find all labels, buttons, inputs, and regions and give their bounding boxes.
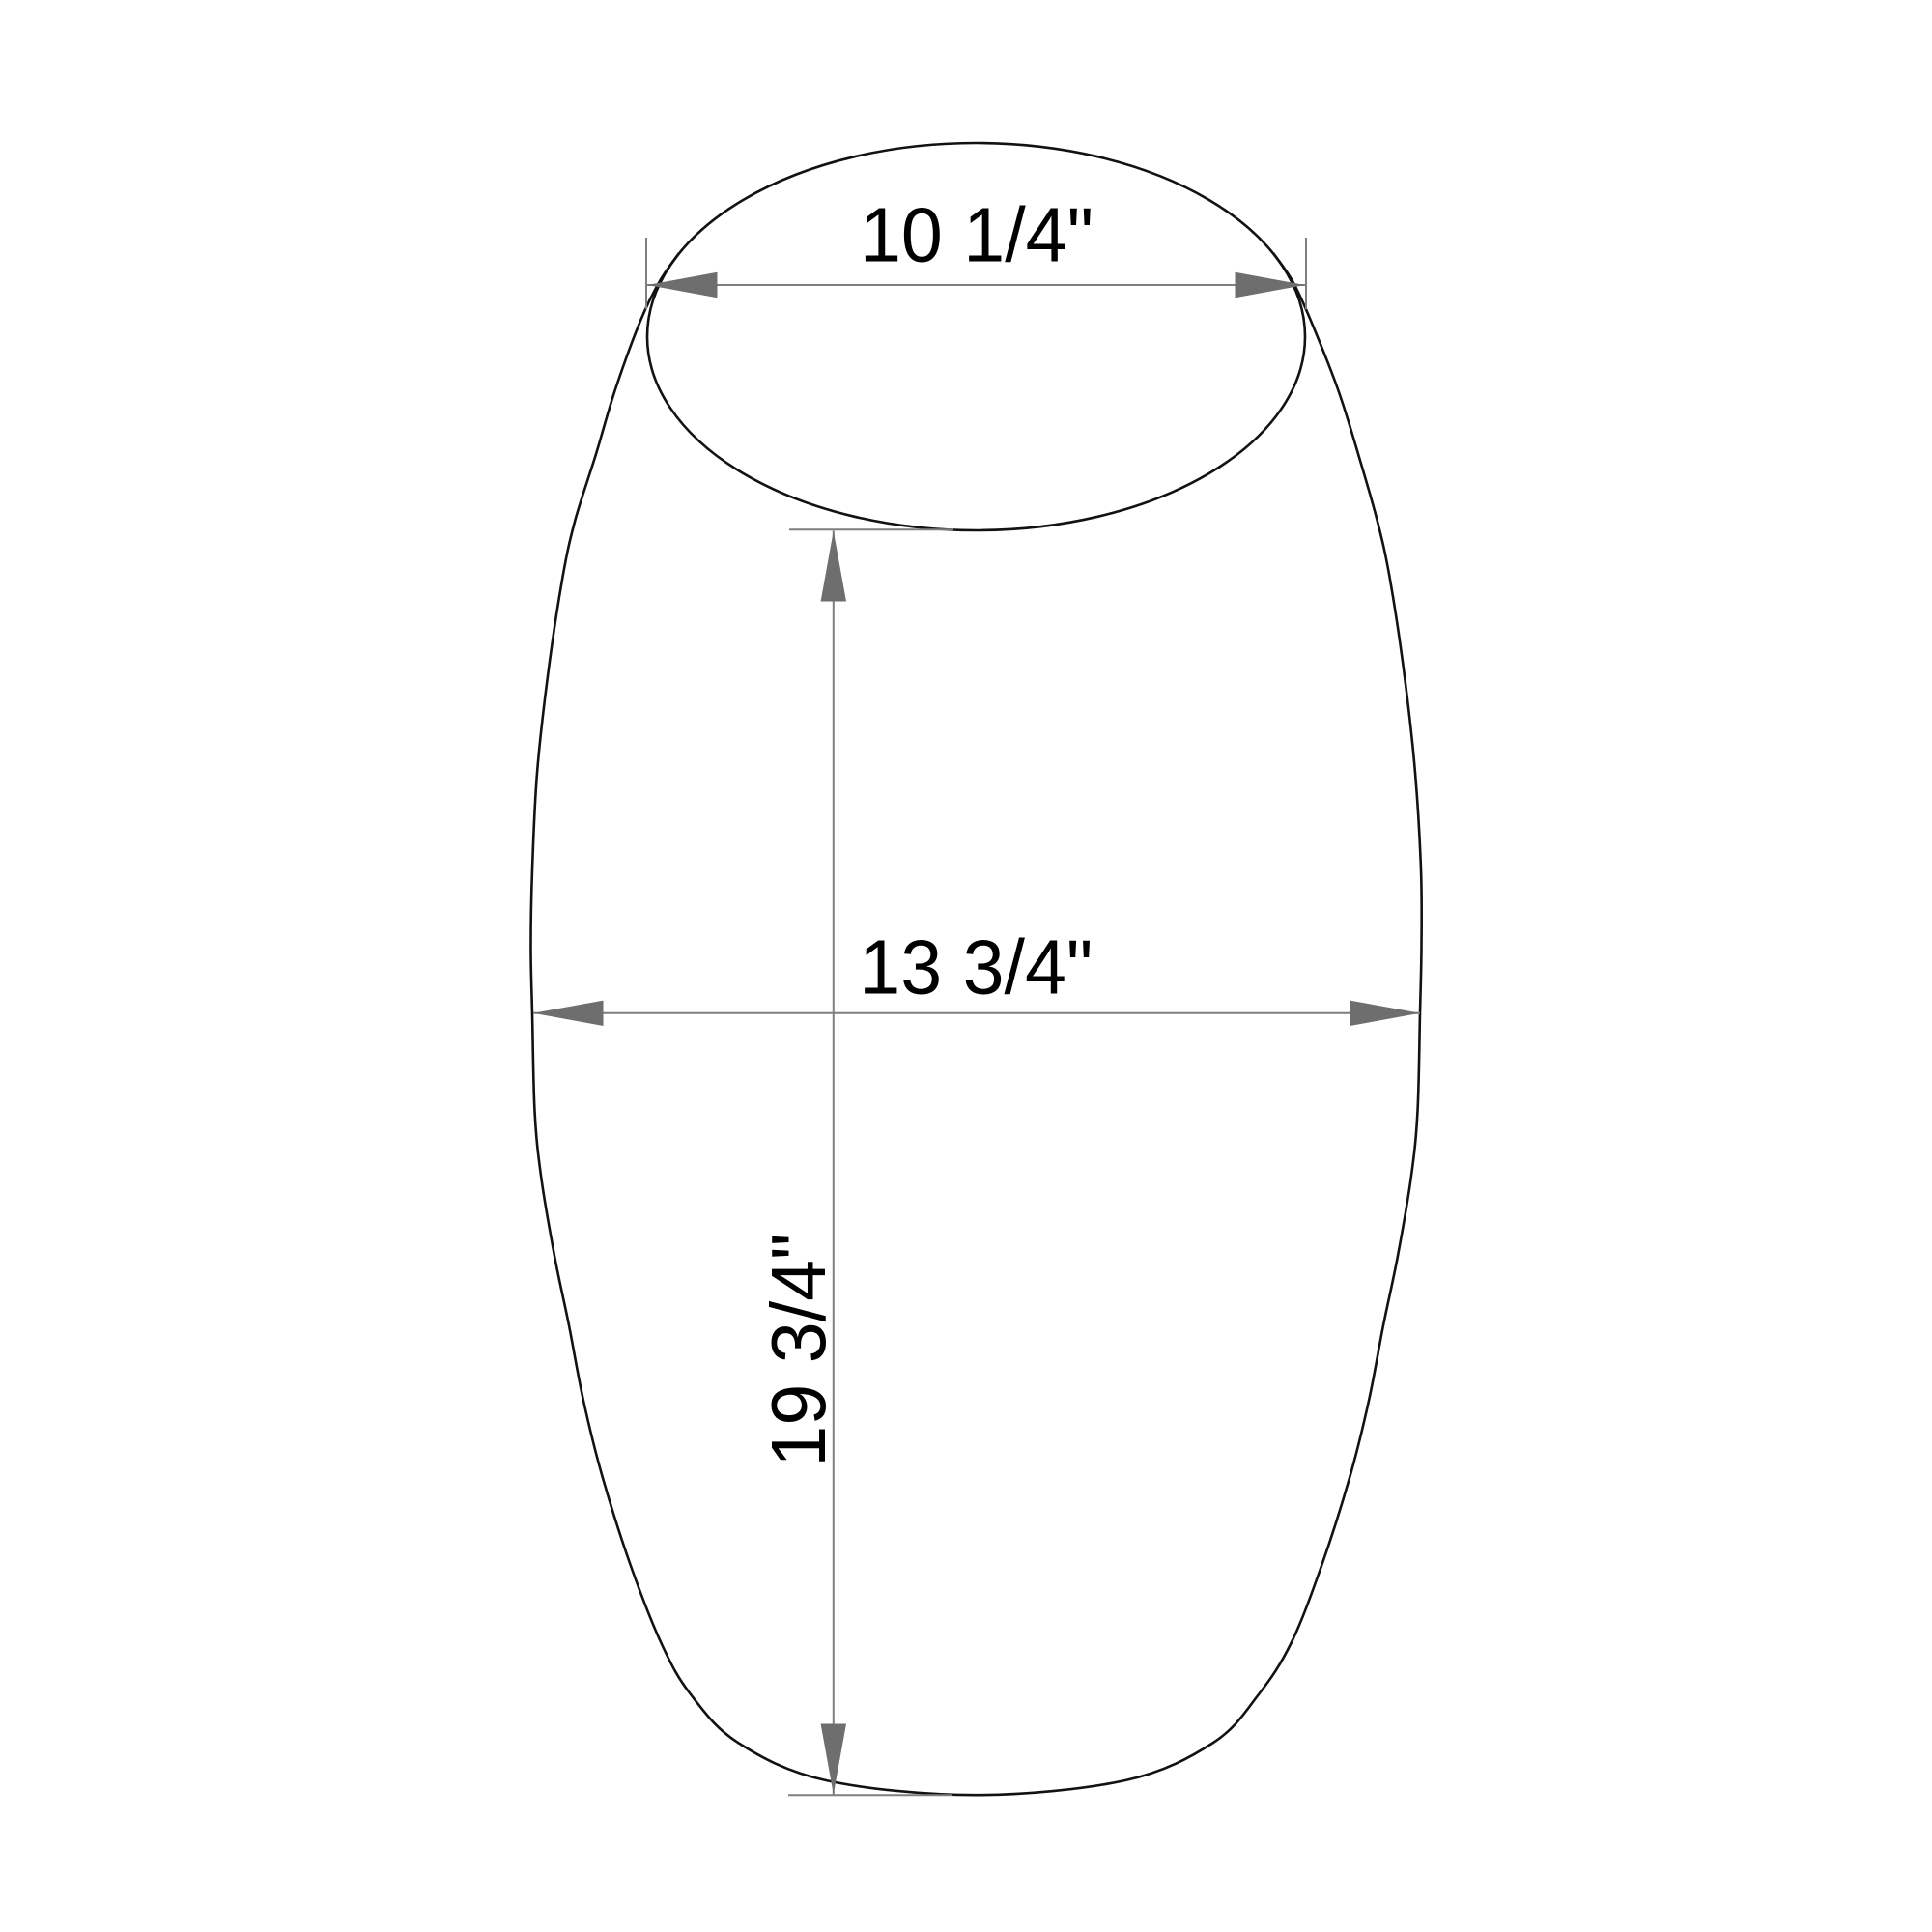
svg-text:13 3/4": 13 3/4" [859,924,1093,1010]
svg-text:19 3/4": 19 3/4" [755,1234,841,1467]
svg-text:10 1/4": 10 1/4" [860,192,1094,278]
